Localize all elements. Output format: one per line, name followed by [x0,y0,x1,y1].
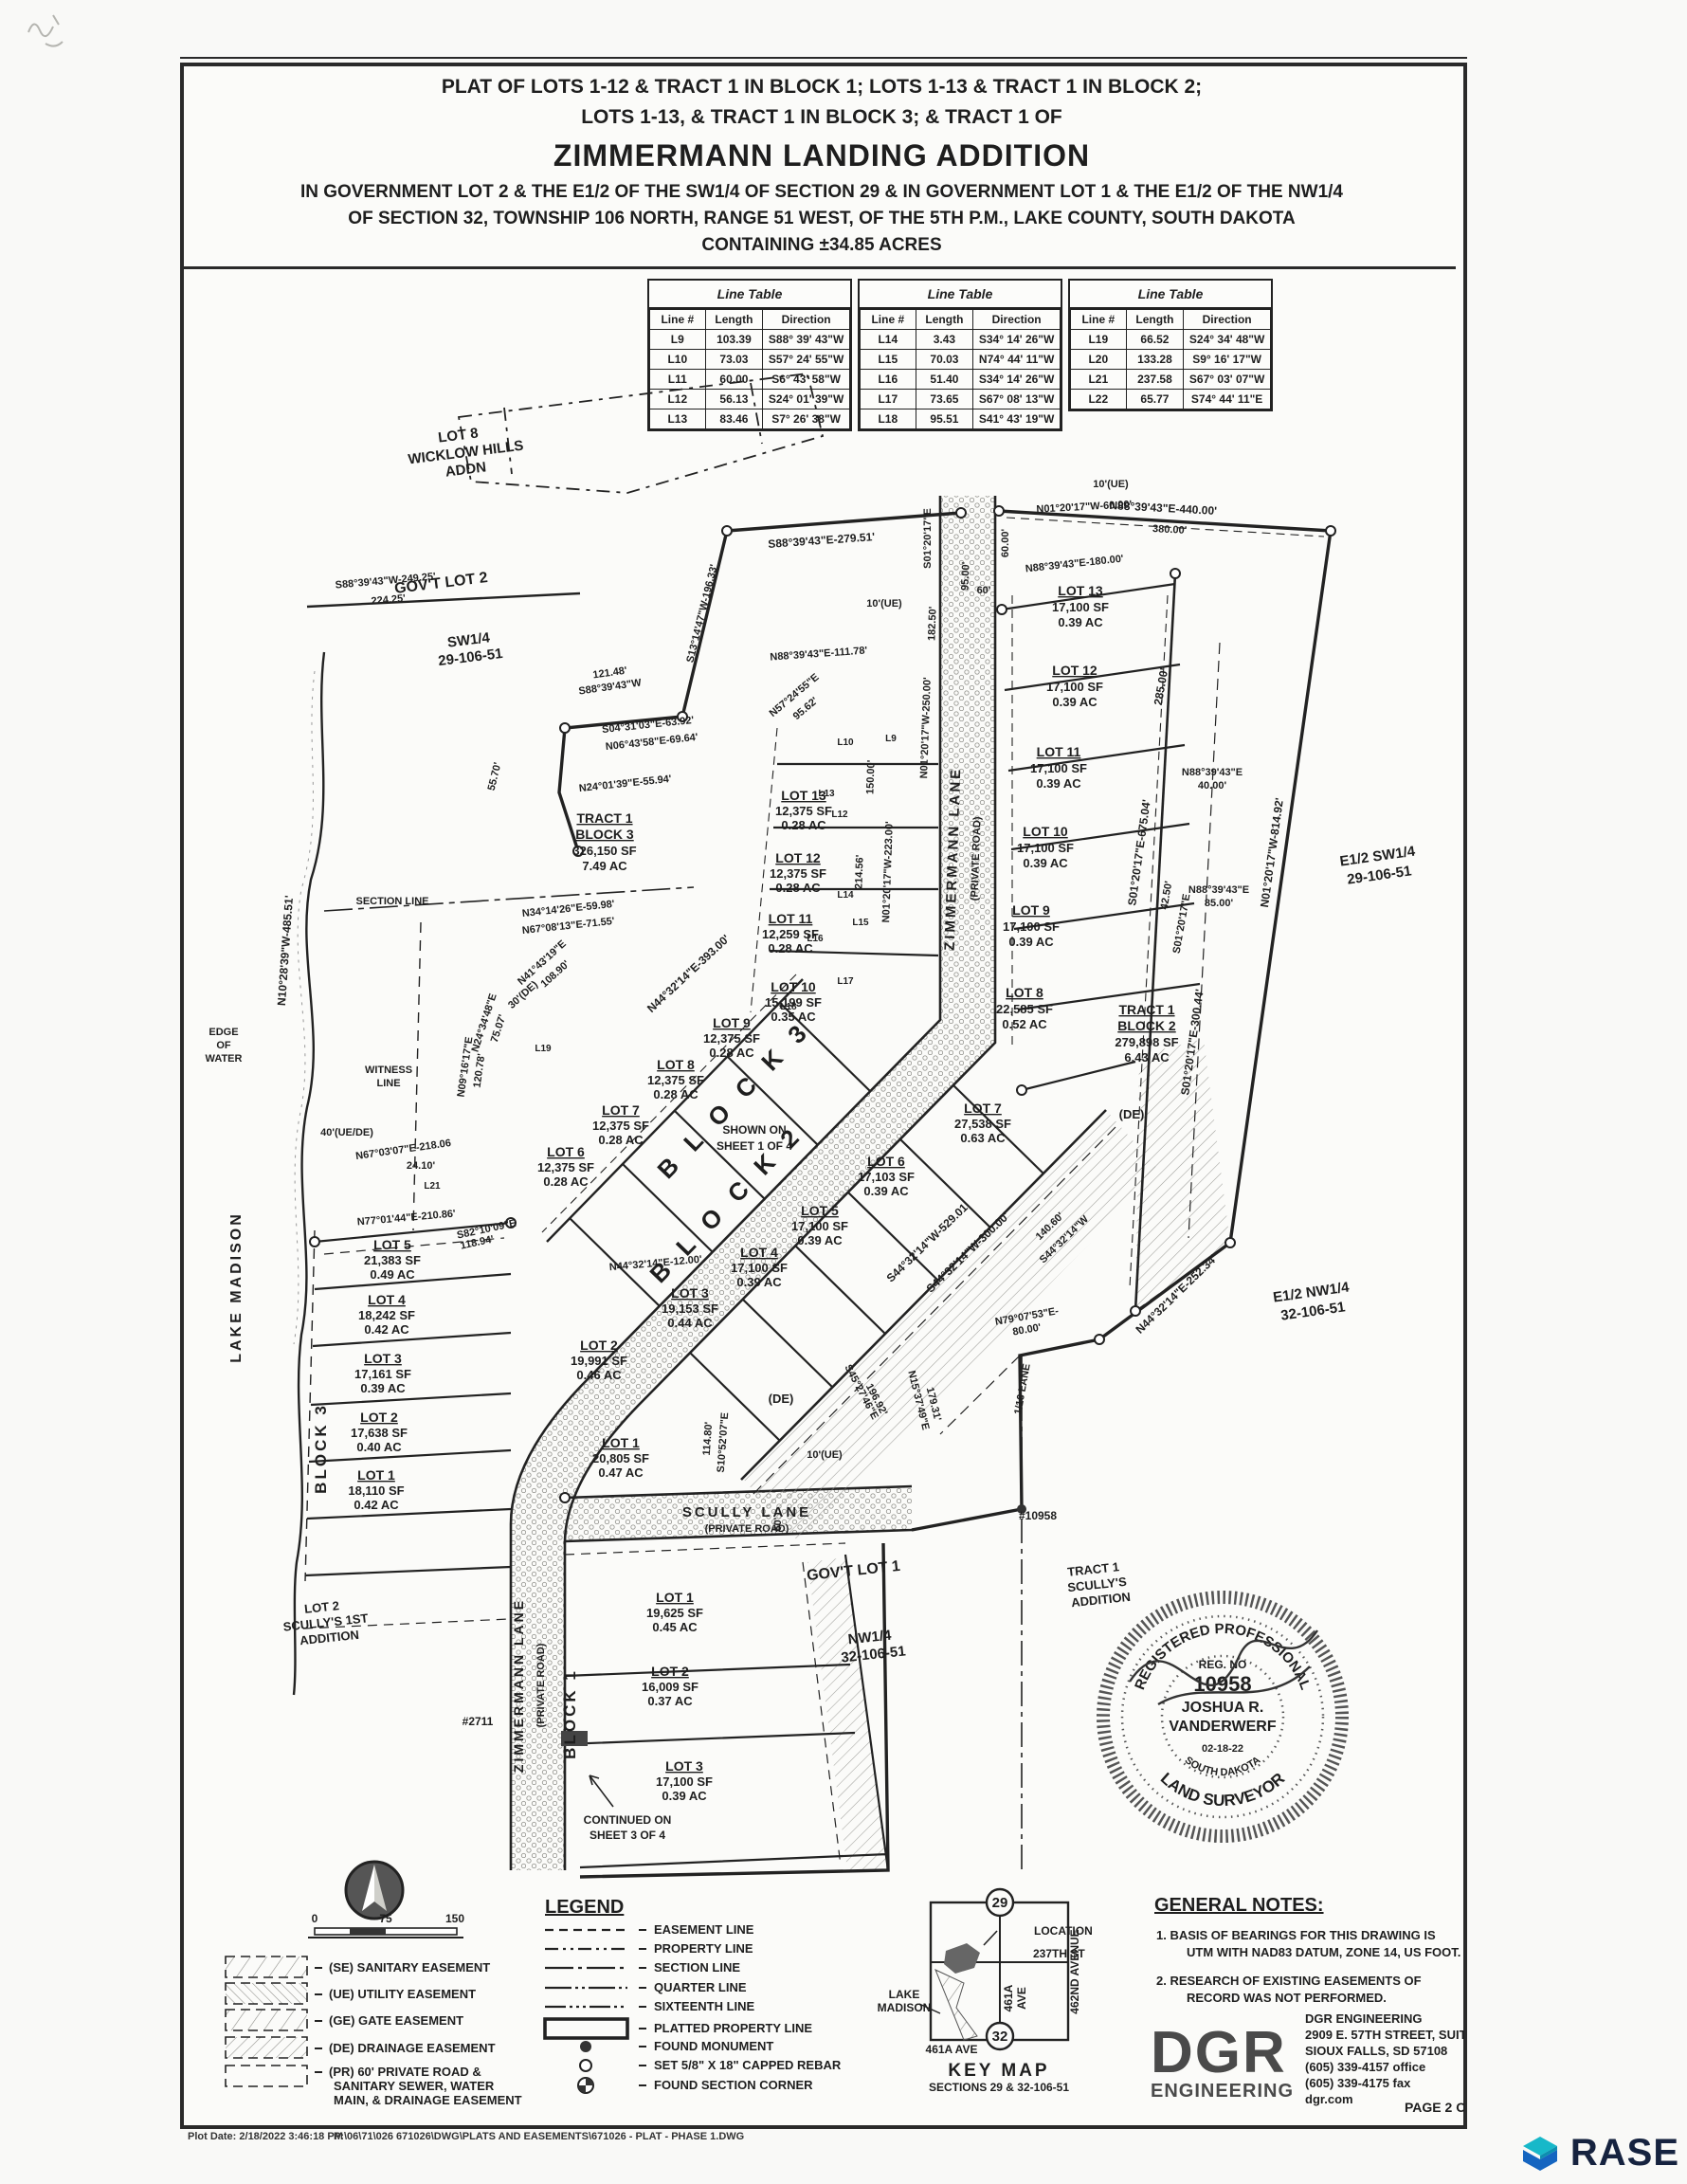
lot-ac: 0.28 AC [598,1133,644,1147]
legend-item: SIXTEENTH LINE [654,1999,755,2013]
lot-sf: 18,242 SF [358,1308,415,1322]
lot-ac: 0.39 AC [797,1233,843,1247]
firm-address: 2909 E. 57TH STREET, SUITE 101 [1305,2028,1464,2042]
bearing-label: N77°01'44"E-210.86' [356,1208,456,1228]
area-label: LINE [376,1078,400,1089]
keymap-location: LOCATION [1034,1924,1093,1938]
lot-name: LOT 6 [867,1154,905,1169]
note-2-line-1: 2. RESEARCH OF EXISTING EASEMENTS OF [1156,1974,1422,1988]
keymap-title: KEY MAP [948,2061,1049,2081]
note-2-line-2: RECORD WAS NOT PERFORMED. [1187,1991,1387,2005]
tract-label: TRACT 1 [576,810,632,826]
bearing-label: 24.10' [407,1160,436,1172]
area-label: EDGE [209,1027,238,1038]
lot-ac: 0.28 AC [709,1046,754,1060]
plat-sheet: PLAT OF LOTS 1-12 & TRACT 1 IN BLOCK 1; … [0,0,1687,2184]
lot-sf: 12,375 SF [537,1160,594,1174]
road-label: SCULLY LANE [682,1504,811,1520]
lot-name: LOT 11 [769,911,813,926]
lot-name: LOT 8 [657,1057,695,1072]
lot-ac: 0.49 AC [370,1267,415,1282]
keymap-lake-2: MADISON [878,2001,932,2014]
road-label: ZIMMERMANN LANE [511,1598,526,1773]
dgr-logo-sub: ENGINEERING [1151,2081,1294,2102]
lot-name: LOT 5 [373,1237,411,1252]
legend-item: PLATTED PROPERTY LINE [654,2021,812,2035]
easement-item-ue: (UE) UTILITY EASEMENT [329,1987,476,2001]
legend-heading: LEGEND [545,1897,624,1918]
lot-name: LOT 2 [580,1338,618,1353]
location-blob [944,1943,980,1974]
lot-name: LOT 1 [357,1467,395,1483]
lot-sf: 12,375 SF [592,1119,649,1133]
keymap-section-32: 32 [992,2029,1008,2045]
note-label: SHEET 3 OF 4 [590,1829,665,1842]
bearing-label: S88°39'43"E-279.51' [768,530,876,551]
drainage-easement-area [807,1557,888,1870]
tract-label: 6.43 AC [1124,1050,1170,1065]
easement-item-ge: (GE) GATE EASEMENT [329,2013,463,2028]
lot-ac: 0.28 AC [781,818,826,832]
lot-sf: 21,383 SF [364,1253,421,1267]
lot-ac: 0.40 AC [356,1440,402,1454]
bearing-label: 214.56' [853,854,865,889]
legend-item: FOUND MONUMENT [654,2039,773,2053]
monument-label: #10958 [1019,1509,1057,1522]
area-label: LAKE MADISON [228,1211,245,1363]
bearing-label: S13°14'47"W-196.33' [684,563,719,664]
lot-name: LOT 6 [547,1144,585,1159]
lot-name: LOT 10 [771,979,816,994]
plat-boundary-west [307,593,580,607]
lot-name: LOT 4 [368,1292,406,1307]
scale-75: 75 [379,1912,392,1925]
lot-name: LOT 7 [964,1101,1002,1116]
easement-item-pr2: SANITARY SEWER, WATER [334,2079,495,2093]
lot-sf: 16,009 SF [642,1680,698,1694]
bearing-label: S01°20'17"E [1171,893,1193,955]
lot-sf: 27,538 SF [954,1117,1011,1131]
bearing-label: 85.00' [1205,898,1234,909]
general-notes: GENERAL NOTES: 1. BASIS OF BEARINGS FOR … [1154,1895,1460,2005]
lot-sf: 12,259 SF [762,927,819,941]
section-corner-symbol [578,2078,593,2093]
lot-name: LOT 7 [602,1102,640,1118]
keymap-461a: 461A [1002,1984,1015,2011]
easement-item-pr: (PR) 60' PRIVATE ROAD & [329,2065,481,2079]
lot-ac: 0.39 AC [1052,695,1097,709]
keymap-lake-1: LAKE [889,1988,920,2001]
road-label: (PRIVATE ROAD) [535,1643,547,1727]
monument-label: #2711 [463,1715,494,1728]
seal-reg: REG. NO [1199,1658,1247,1671]
north-arrow [346,1862,403,1919]
lot-sf: 17,100 SF [1030,761,1087,775]
key-map: 29 32 LOCATION 237TH ST 461A AVE 462ND A… [878,1889,1093,2094]
bearing-label: S88°39'43"W [578,677,643,697]
lot-sf: 18,110 SF [348,1483,404,1498]
tract-label: BLOCK 2 [1117,1018,1176,1033]
bearing-label: 114.80' [701,1421,715,1456]
firm-fax: (605) 339-4175 fax [1305,2076,1411,2090]
lot-name: LOT 9 [1012,902,1050,918]
lot-sf: 19,991 SF [571,1354,627,1368]
scale-0: 0 [312,1912,318,1925]
line-ref: L21 [424,1181,441,1192]
lot-sf: 17,100 SF [656,1774,713,1789]
bearing-label: 40.00' [1198,780,1227,792]
scale-150: 150 [445,1912,464,1925]
rase-logo-text: RASE [1570,2132,1679,2175]
bearing-label: S04°31'03"E-63.92' [602,715,696,736]
lot-ac: 0.39 AC [1058,615,1103,629]
bearing-label: 380.00' [1152,523,1188,537]
lot-ac: 0.39 AC [736,1275,782,1289]
bearing-label: S10°52'07"E [716,1412,731,1473]
bearing-label: N88°39'43"E [1188,884,1249,896]
bearing-label: S01°20'17"E-675.04' [1125,798,1153,906]
bearing-label: N24°01'39"E-55.94' [578,773,672,794]
lot-name: LOT 2 [360,1410,398,1425]
legend-item: EASEMENT LINE [654,1922,754,1937]
bearing-label: 10'(UE) [807,1449,843,1461]
seal-name-2: VANDERWERF [1169,1719,1276,1735]
note-1-line-2: UTM WITH NAD83 DATUM, ZONE 14, US FOOT. [1187,1945,1460,1959]
lot-name: LOT 2 [651,1664,689,1679]
area-label: OF [216,1040,231,1051]
line-ref: L10 [837,737,854,748]
lot-name: LOT 10 [1023,824,1068,839]
road-label: 1/16 LANE [1012,1363,1032,1416]
lot-sf: 17,100 SF [1017,841,1074,855]
easement-label: (DE) [769,1392,794,1406]
easement-item-de: (DE) DRAINAGE EASEMENT [329,2041,496,2055]
keymap-461a-bottom: 461A AVE [926,2043,978,2056]
lot-sf: 17,100 SF [1003,919,1060,934]
keymap-462nd: 462ND AVENUE [1068,1929,1081,2013]
note-label: CONTINUED ON [584,1813,672,1827]
bearing-label: 95.00' [959,561,971,591]
lot-ac: 0.42 AC [364,1322,409,1337]
lot-sf: 20,805 SF [592,1451,649,1465]
bearing-label: 40'(UE/DE) [320,1127,373,1138]
lot-name: LOT 1 [602,1435,640,1450]
tract-label: BLOCK 3 [575,827,634,842]
lot-ac: 0.28 AC [543,1174,589,1189]
bearing-label: 10'(UE) [1093,479,1129,490]
area-label: SECTION LINE [355,896,428,907]
line-ref: L15 [852,918,869,928]
bearing-label: 150.00' [864,759,877,794]
lot-sf: 17,638 SF [351,1426,408,1440]
bearing-label: N88°39'43"E-111.78' [770,645,868,663]
lot-name: LOT 12 [1052,663,1097,678]
lot-ac: 0.52 AC [1002,1017,1047,1031]
lot-ac: 0.42 AC [354,1498,399,1512]
lot-ac: 0.47 AC [598,1465,644,1480]
lot-name: LOT 5 [801,1203,839,1218]
note-1-line-1: 1. BASIS OF BEARINGS FOR THIS DRAWING IS [1156,1928,1436,1942]
lake-shore-line [294,652,324,1695]
easement-label: (DE) [1119,1107,1145,1121]
seal-state: SOUTH DAKOTA [1183,1755,1263,1778]
wicklow-parcel [459,373,823,493]
lot-sf: 17,100 SF [1052,600,1109,614]
keymap-section-29: 29 [992,1895,1008,1911]
scale-bar: 0 75 150 [308,1912,464,1938]
legend-item: FOUND SECTION CORNER [654,2078,813,2092]
lot-name: LOT 3 [671,1285,709,1301]
lot-sf: 17,161 SF [354,1367,411,1381]
pencil-mark [8,4,140,61]
keymap-subtitle: SECTIONS 29 & 32-106-51 [929,2081,1069,2094]
svg-text:SOUTH DAKOTA: SOUTH DAKOTA [1183,1755,1263,1778]
bearing-label: 10'(UE) [866,598,902,610]
firm-name: DGR ENGINEERING [1305,2011,1423,2026]
keymap-461a-ave: AVE [1015,1987,1028,2010]
lot-name: LOT 1 [656,1590,694,1605]
lot-name: LOT 4 [740,1245,778,1260]
bearing-label: 60.00' [1000,529,1011,558]
lot-ac: 0.28 AC [653,1087,698,1101]
line-ref: L9 [885,734,897,744]
firm-web: dgr.com [1305,2092,1353,2106]
bearing-label: 182.50' [926,606,938,641]
bearing-label: N10°28'39"W-485.51' [275,895,296,1007]
page-number: PAGE 2 OF 4 [1405,2100,1464,2115]
plot-date: Plot Date: 2/18/2022 3:46:18 PM [188,2131,343,2142]
lot-ac: 0.39 AC [1008,935,1054,949]
bearing-label: 60' [977,585,991,596]
seal-date: 02-18-22 [1202,1743,1243,1755]
block-label: BLOCK 1 [561,1668,579,1759]
bearing-label: 121.48' [592,665,628,682]
bearing-label: N01°20'17"W-814.92' [1258,797,1286,909]
lot-sf: 19,625 SF [646,1606,703,1620]
lot-name: LOT 13 [1058,583,1103,598]
bearing-label: N44°32'14"E-393.00' [644,932,733,1015]
lot-sf: 12,375 SF [775,804,832,818]
lot-ac: 0.39 AC [360,1381,406,1395]
lot-ac: 0.45 AC [652,1620,698,1634]
bearing-label: 55.70' [486,761,504,792]
bearing-label: N06°43'58"E-69.64' [605,732,698,753]
lot-ac: 0.44 AC [667,1316,713,1330]
bearing-label: N88°39'43"E-180.00' [1025,554,1124,575]
bearing-label: N01°20'17"W-60.00' [1036,499,1133,515]
lot-ac: 0.46 AC [576,1368,622,1382]
legend-item: PROPERTY LINE [654,1941,753,1956]
seal-name-1: JOSHUA R. [1182,1700,1264,1716]
legend-item: QUARTER LINE [654,1980,747,1994]
continued-arrow [590,1775,613,1807]
lot-sf: 12,375 SF [770,866,826,881]
rase-logo-icon [1517,2127,1563,2178]
bearing-label: S01°20'17"E [922,508,934,569]
lot-sf: 17,100 SF [1046,680,1103,694]
lot-ac: 0.37 AC [647,1694,693,1708]
line-ref: L19 [535,1044,552,1054]
bearing-label: N01°20'17"W-223.00' [880,821,896,923]
tract-label: 326,150 SF [572,844,636,858]
easement-item-se: (SE) SANITARY EASEMENT [329,1960,490,1975]
firm-city: SIOUX FALLS, SD 57108 [1305,2044,1447,2058]
firm-phone: (605) 339-4157 office [1305,2060,1425,2074]
lot-sf: 19,153 SF [662,1301,718,1316]
legend-item: SET 5/8" X 18" CAPPED REBAR [654,2058,842,2072]
easement-item-pr3: MAIN, & DRAINAGE EASEMENT [334,2093,522,2107]
sheet-border-top-line [180,57,1467,59]
lot-ac: 0.28 AC [768,941,813,955]
line-ref: L17 [837,976,854,987]
rase-watermark: RASE [1517,2127,1679,2178]
lot-name: LOT 12 [775,850,821,865]
firm-block: DGR ENGINEERING DGR ENGINEERING 2909 E. … [1151,2011,1464,2115]
tract-label: 7.49 AC [582,859,627,873]
lot-sf: 12,375 SF [703,1031,760,1046]
bearing-label: N67°08'13"E-71.55' [521,916,615,937]
dgr-logo: DGR [1151,2020,1287,2085]
line-ref: L12 [831,810,848,820]
area-label: WITNESS [365,1065,412,1076]
bearing-label: N67°03'07"E-218.06 [354,1137,451,1162]
legend-item: SECTION LINE [654,1960,740,1975]
lot-sf: 12,375 SF [647,1073,704,1087]
lot-name: LOT 13 [781,788,826,803]
lot-name: LOT 11 [1037,744,1081,759]
lot-name: LOT 3 [665,1758,703,1774]
notes-heading: GENERAL NOTES: [1154,1895,1324,1916]
lot-ac: 0.39 AC [863,1184,909,1198]
lot-ac: 0.28 AC [775,881,821,895]
file-path: P:\06\71\026 671026\DWG\PLATS AND EASEME… [334,2131,744,2142]
lot-sf: 17,100 SF [731,1261,788,1275]
bearing-label: 120.78' [472,1052,488,1088]
plat-drawing: LOT 8 WICKLOW HILLS ADDN GOV'T LOT 2 SW1… [182,64,1464,2121]
bearing-label: N09°16'17"E [456,1036,476,1098]
lot-name: LOT 3 [364,1351,402,1366]
line-ref: L14 [837,890,854,901]
legend: LEGEND EASEMENT LINE PROPERTY LINE SECTI… [545,1897,842,2093]
lot-name: LOT 9 [713,1015,751,1030]
lot-sf: 15,199 SF [765,995,822,1010]
lot-name: LOT 8 [1006,985,1043,1000]
surveyor-seal: REGISTERED PROFESSIONAL LAND SURVEYOR SO… [1103,1597,1342,1836]
tract-label: TRACT 1 [1118,1002,1174,1017]
lot-ac: 0.39 AC [1023,856,1068,870]
bearing-label: 224.25' [371,592,407,607]
lot-sf: 17,103 SF [858,1170,915,1184]
area-label: WATER [206,1053,243,1065]
bearing-label: 60' [772,1517,784,1531]
easement-legend: (SE) SANITARY EASEMENT (UE) UTILITY EASE… [226,1956,522,2107]
bearing-label: N88°39'43"E [1182,767,1243,778]
lot-sf: 17,100 SF [791,1219,848,1233]
tract-label: 279,898 SF [1115,1035,1178,1049]
block-label: BLOCK 3 [312,1403,330,1494]
lot-sf: 22,585 SF [996,1002,1053,1016]
lot-ac: 0.39 AC [1036,776,1081,791]
lot-ac: 0.63 AC [960,1131,1006,1145]
lot-ac: 0.39 AC [662,1789,707,1803]
